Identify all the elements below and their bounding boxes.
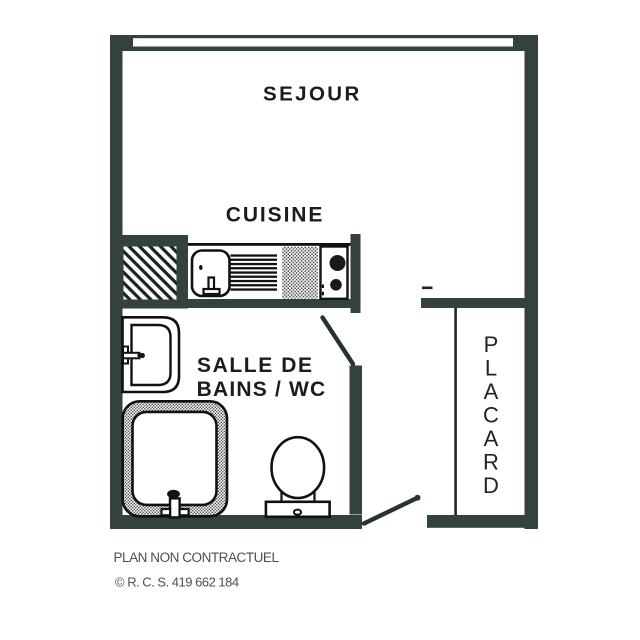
svg-text:SALLE DE: SALLE DE (197, 354, 314, 377)
svg-text:C: C (483, 403, 499, 428)
svg-text:BAINS / WC: BAINS / WC (197, 378, 327, 401)
svg-text:A: A (484, 379, 499, 404)
svg-text:D: D (483, 473, 499, 498)
svg-text:SEJOUR: SEJOUR (263, 83, 362, 106)
svg-text:PLAN NON CONTRACTUEL: PLAN NON CONTRACTUEL (114, 550, 280, 565)
svg-text:A: A (484, 426, 499, 451)
svg-text:P: P (484, 332, 499, 357)
svg-text:© R. C. S. 419 662 184: © R. C. S. 419 662 184 (115, 575, 239, 590)
svg-text:L: L (485, 356, 497, 381)
svg-text:CUISINE: CUISINE (226, 204, 324, 227)
svg-text:R: R (483, 450, 499, 475)
